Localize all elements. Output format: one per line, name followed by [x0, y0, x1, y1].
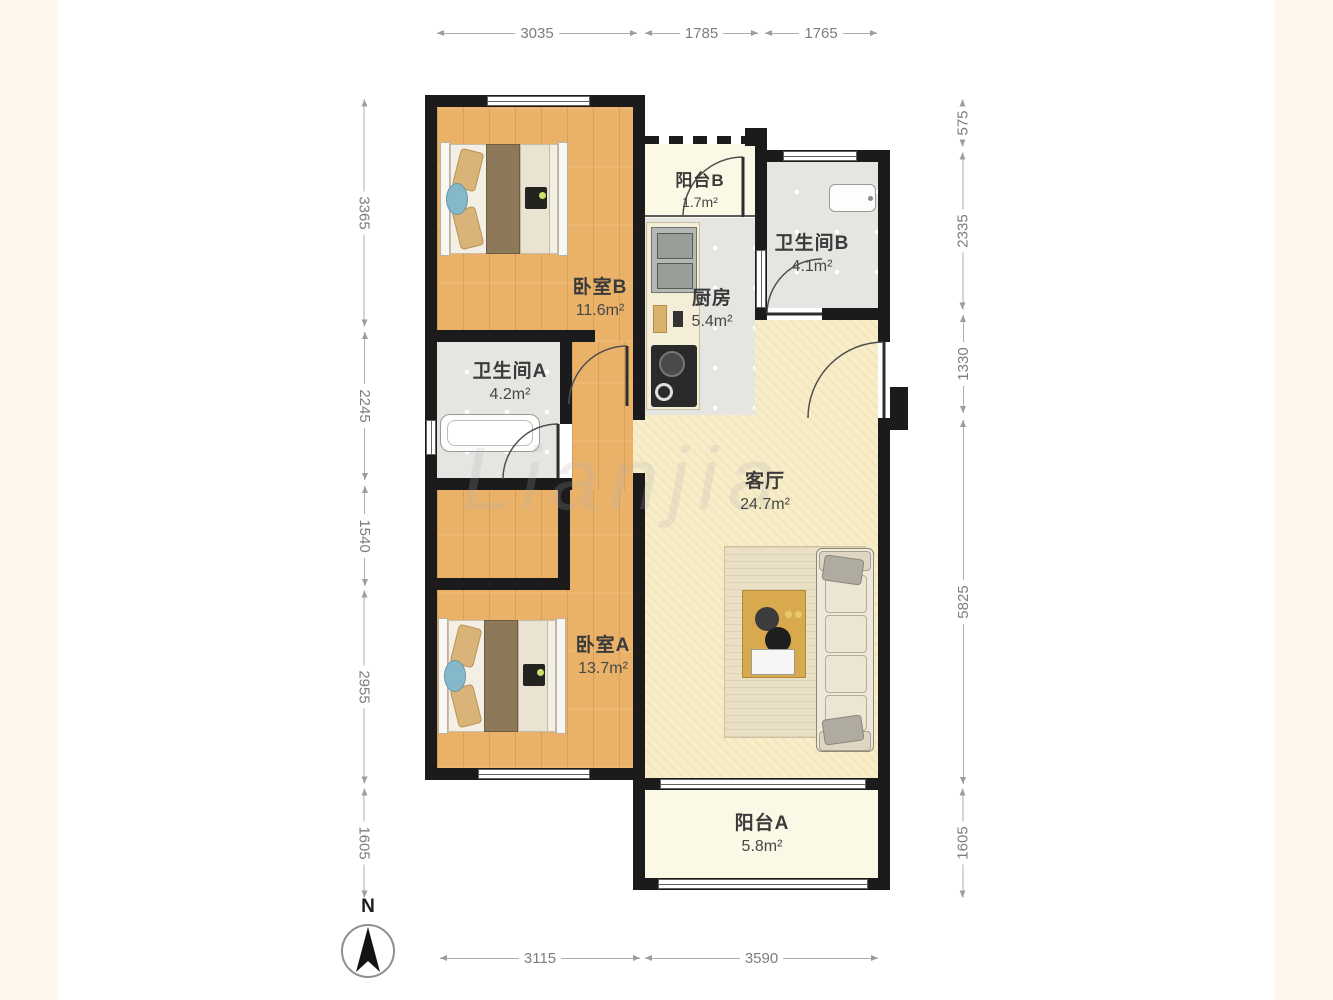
room-area: 5.8m² — [692, 838, 832, 856]
dim-line — [364, 789, 365, 822]
room-area: 5.4m² — [652, 313, 772, 331]
dim-value: 3590 — [740, 950, 783, 967]
dimension-top-1: 3035 — [437, 23, 637, 43]
room-label-bedroom-a: 卧室A 13.7m² — [528, 630, 678, 678]
door-arc — [503, 424, 558, 479]
room-label-kitchen: 厨房 5.4m² — [652, 283, 772, 331]
room-label-balcony-a: 阳台A 5.8m² — [692, 808, 832, 856]
dimension-left-4: 2955 — [355, 591, 375, 784]
dim-line — [783, 958, 878, 959]
room-area: 4.1m² — [742, 258, 882, 276]
north-label: N — [339, 896, 397, 918]
dim-line — [962, 153, 963, 210]
dim-value: 1605 — [356, 821, 373, 864]
dim-line — [723, 33, 758, 34]
dim-value: 3035 — [515, 25, 558, 42]
dim-line — [963, 315, 964, 342]
dim-line — [962, 253, 963, 310]
dim-line — [645, 958, 740, 959]
dimension-bottom-2: 3590 — [645, 948, 878, 968]
dim-line — [561, 958, 640, 959]
dim-value: 3365 — [356, 191, 373, 234]
door-swings — [0, 0, 1333, 1000]
room-name: 卫生间A — [440, 356, 580, 383]
door-arc — [808, 342, 884, 418]
dimension-right-5: 1605 — [953, 789, 973, 898]
dimension-left-5: 1605 — [355, 789, 375, 898]
dim-line — [765, 33, 799, 34]
room-name: 卧室A — [528, 630, 678, 657]
compass — [339, 922, 397, 980]
dimension-right-2: 2335 — [953, 153, 973, 310]
dim-line — [962, 100, 963, 106]
dimension-left-1: 3365 — [355, 100, 375, 327]
room-area: 24.7m² — [695, 496, 835, 514]
room-label-bathroom-a: 卫生间A 4.2m² — [440, 356, 580, 404]
dim-line — [440, 958, 519, 959]
dim-line — [963, 386, 964, 413]
room-name: 卫生间B — [742, 228, 882, 255]
dim-line — [365, 558, 366, 586]
room-label-balcony-b: 阳台B 1.7m² — [648, 166, 752, 210]
dim-line — [962, 141, 963, 147]
dim-line — [963, 420, 964, 580]
dim-value: 2245 — [357, 384, 374, 427]
room-name: 厨房 — [652, 283, 772, 310]
dimension-right-1: 575 — [953, 100, 973, 147]
dim-value: 1785 — [680, 25, 723, 42]
dimension-right-4: 5825 — [953, 420, 973, 784]
dimension-right-3: 1330 — [953, 315, 973, 413]
dim-value: 1540 — [357, 514, 374, 557]
dim-value: 1765 — [799, 25, 842, 42]
dim-line — [364, 865, 365, 898]
dim-value: 5825 — [955, 580, 972, 623]
dimension-left-3: 1540 — [355, 486, 375, 586]
dim-line — [645, 33, 680, 34]
room-area: 13.7m² — [528, 660, 678, 678]
room-name: 阳台B — [648, 166, 752, 191]
dimension-top-2: 1785 — [645, 23, 758, 43]
floor-plan: Lianjia 卧室B 11.6m² 阳台B 1.7m² 卫生间B 4.1m² … — [0, 0, 1333, 1000]
dim-value: 575 — [954, 105, 971, 140]
dim-line — [365, 332, 366, 384]
dim-line — [559, 33, 637, 34]
north-arrow-icon — [339, 922, 397, 980]
room-label-bathroom-b: 卫生间B 4.1m² — [742, 228, 882, 276]
dim-line — [963, 624, 964, 784]
dim-line — [365, 428, 366, 480]
room-name: 客厅 — [695, 466, 835, 493]
dim-line — [365, 486, 366, 514]
dim-line — [364, 709, 365, 784]
dim-value: 3115 — [519, 950, 561, 967]
dim-line — [364, 591, 365, 666]
room-name: 阳台A — [692, 808, 832, 835]
dim-line — [962, 789, 963, 822]
dim-value: 1330 — [955, 342, 972, 385]
dim-line — [437, 33, 515, 34]
room-area: 4.2m² — [440, 386, 580, 404]
dim-value: 2335 — [954, 209, 971, 252]
dim-line — [843, 33, 877, 34]
dim-line — [364, 100, 365, 192]
room-label-living-room: 客厅 24.7m² — [695, 466, 835, 514]
dimension-bottom-1: 3115 — [440, 948, 640, 968]
dim-line — [962, 865, 963, 898]
dimension-left-2: 2245 — [355, 332, 375, 480]
room-area: 1.7m² — [648, 194, 752, 210]
dim-value: 2955 — [356, 665, 373, 708]
dim-line — [364, 235, 365, 327]
dimension-top-3: 1765 — [765, 23, 877, 43]
dim-value: 1605 — [954, 821, 971, 864]
